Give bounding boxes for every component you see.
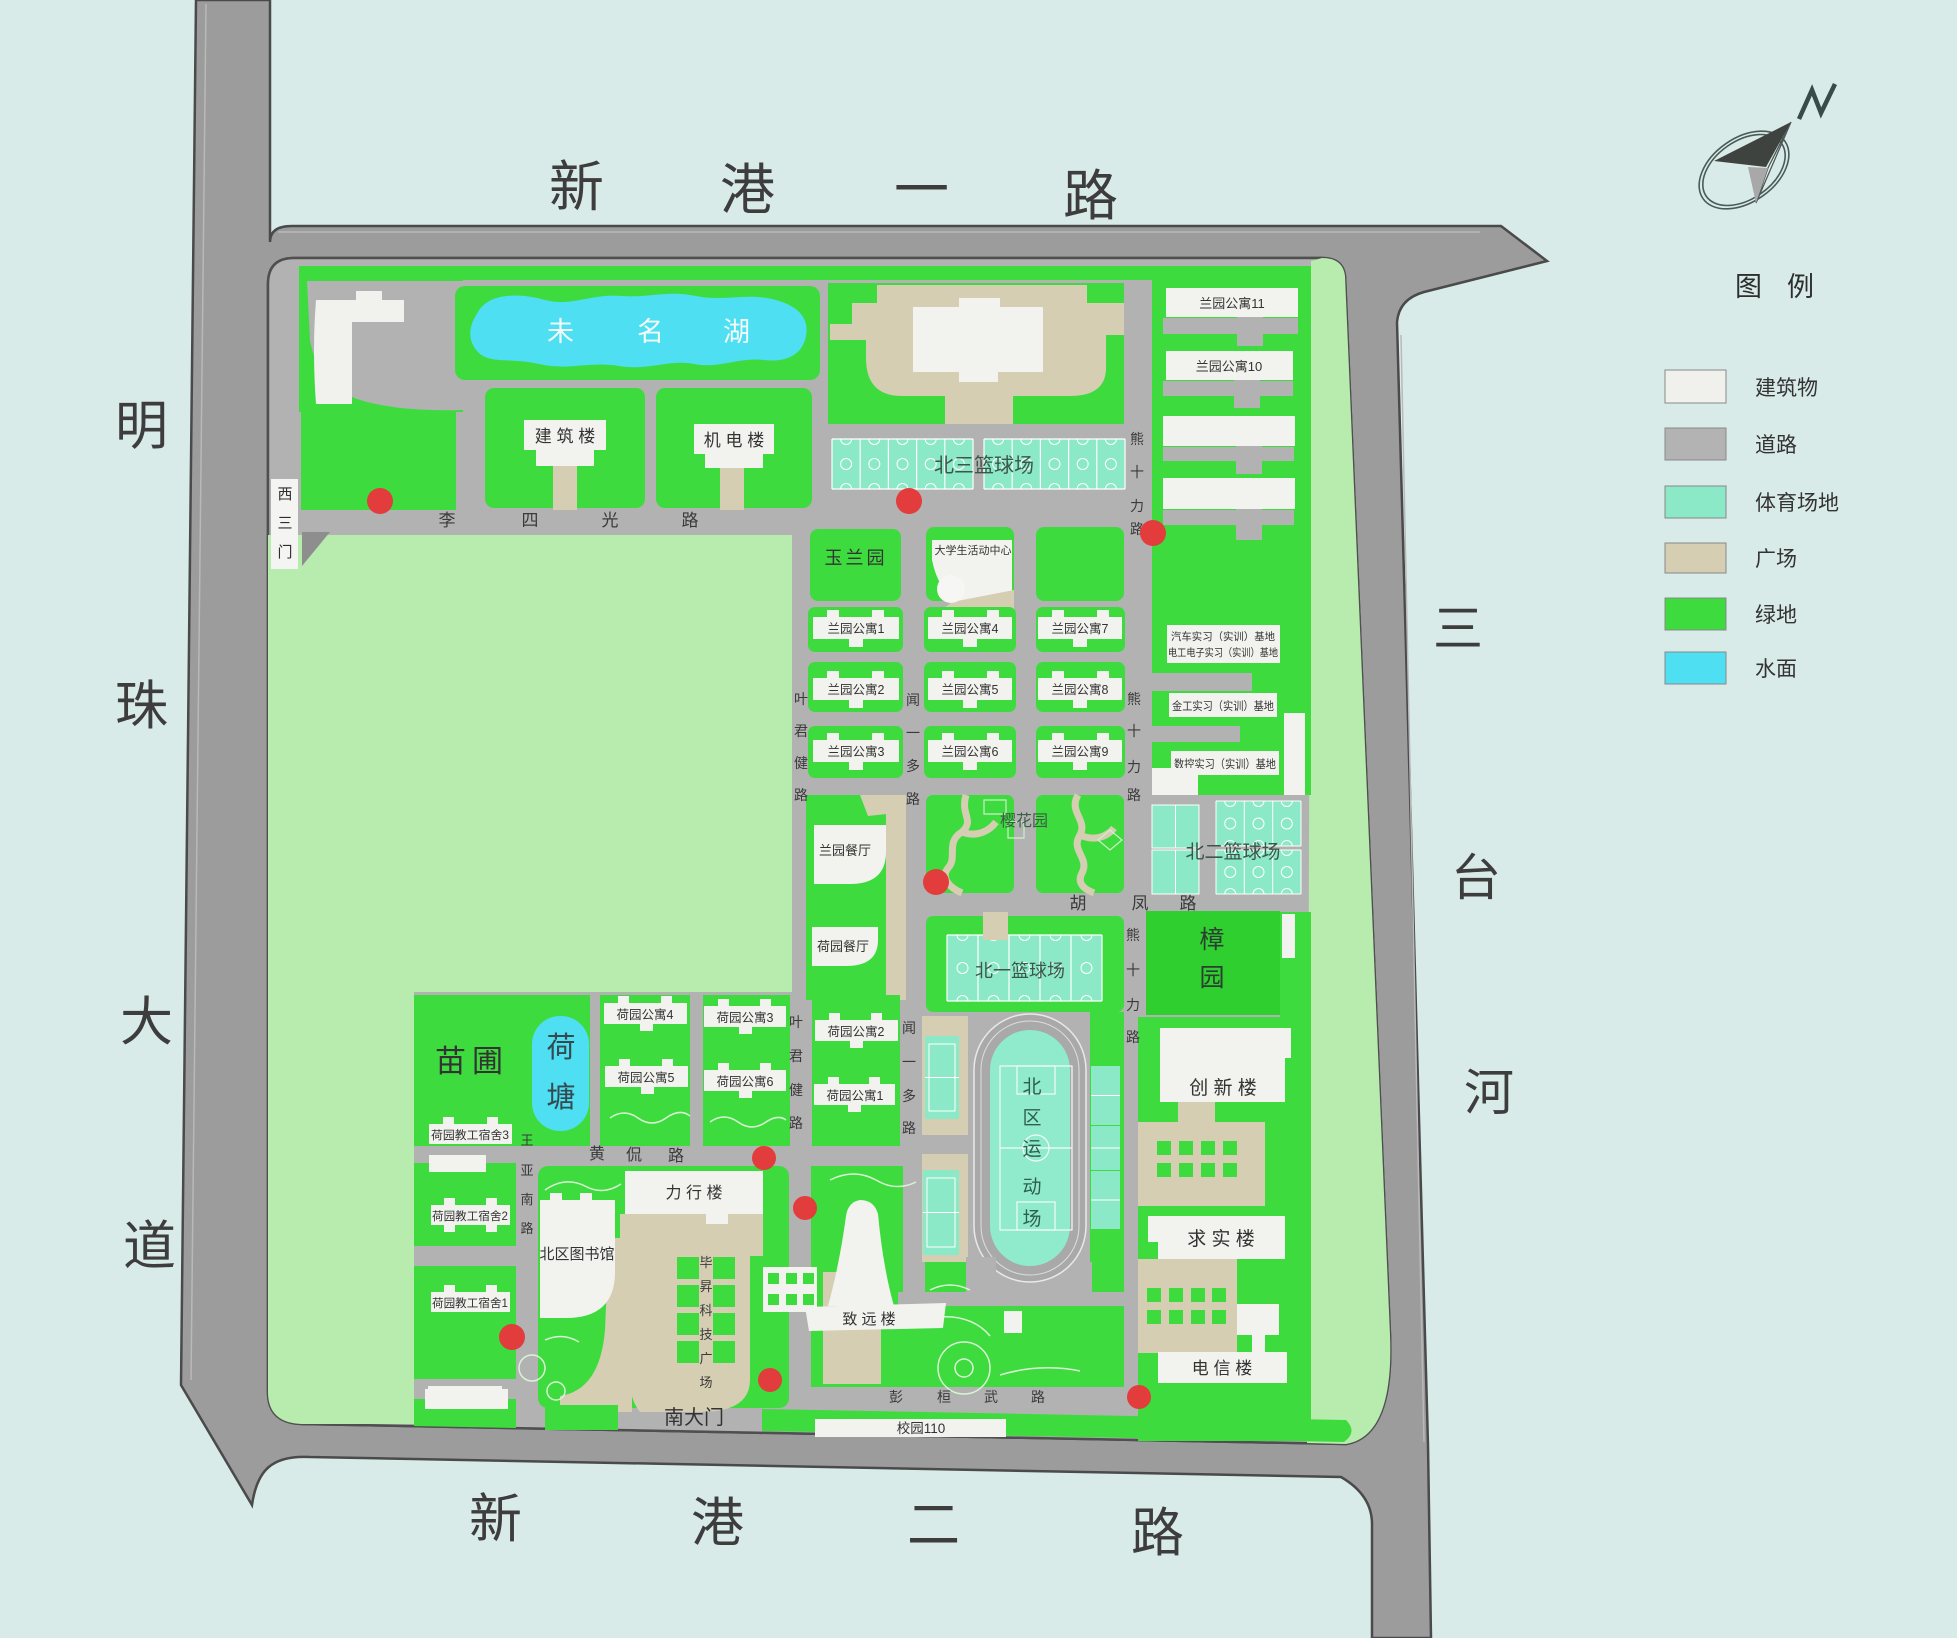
svg-text:体育场地: 体育场地 [1755,492,1839,515]
svg-text:叶: 叶 [789,1014,803,1030]
svg-text:湖: 湖 [723,317,750,347]
svg-text:路: 路 [1127,787,1141,803]
svg-text:兰园公寓5: 兰园公寓5 [942,682,999,697]
svg-text:台: 台 [1451,850,1501,906]
svg-text:北一篮球场: 北一篮球场 [975,961,1065,981]
svg-text:路: 路 [1131,1504,1184,1563]
svg-text:广场: 广场 [1755,548,1797,571]
svg-text:汽车实习（实训）基地: 汽车实习（实训）基地 [1171,630,1275,643]
svg-text:图: 图 [1735,272,1762,302]
svg-text:熊: 熊 [1126,927,1140,943]
svg-text:力: 力 [1126,997,1140,1013]
svg-text:动: 动 [1022,1176,1041,1198]
svg-text:场: 场 [1022,1208,1041,1230]
svg-text:路: 路 [906,791,920,807]
svg-text:荷园餐厅: 荷园餐厅 [817,939,869,954]
svg-text:建 筑 楼: 建 筑 楼 [535,427,595,446]
svg-text:港: 港 [720,159,775,221]
svg-text:樟: 樟 [1199,926,1224,954]
svg-text:闻: 闻 [906,692,920,708]
svg-text:道路: 道路 [1755,434,1797,457]
svg-text:三: 三 [277,515,292,532]
svg-text:兰园公寓9: 兰园公寓9 [1052,744,1109,759]
svg-text:珠: 珠 [115,677,168,736]
svg-text:路: 路 [794,787,808,803]
svg-text:武: 武 [984,1389,998,1405]
svg-text:力: 力 [1127,759,1141,775]
svg-text:叶: 叶 [794,691,808,707]
svg-text:校园110: 校园110 [897,1420,946,1436]
svg-text:荷园教工宿舍1: 荷园教工宿舍1 [432,1296,508,1310]
svg-text:新: 新 [469,1490,522,1549]
svg-text:名: 名 [637,317,664,347]
svg-text:兰园公寓11: 兰园公寓11 [1199,296,1265,311]
svg-text:昇: 昇 [699,1279,712,1294]
svg-text:电 信 楼: 电 信 楼 [1192,1359,1252,1378]
svg-text:兰园公寓8: 兰园公寓8 [1052,682,1109,697]
svg-text:三: 三 [1433,601,1483,657]
svg-text:河: 河 [1464,1065,1514,1121]
svg-text:区: 区 [1022,1108,1041,1129]
svg-text:路: 路 [902,1120,916,1136]
svg-text:场: 场 [699,1375,712,1390]
svg-text:路: 路 [789,1115,803,1131]
svg-text:一: 一 [906,725,920,741]
svg-text:创 新 楼: 创 新 楼 [1189,1077,1257,1099]
svg-text:运: 运 [1022,1139,1041,1160]
svg-text:机 电 楼: 机 电 楼 [704,431,764,450]
svg-text:十: 十 [1127,723,1141,739]
svg-text:兰园公寓6: 兰园公寓6 [942,744,999,759]
svg-text:致 远 楼: 致 远 楼 [842,1311,895,1328]
svg-text:兰园公寓7: 兰园公寓7 [1052,621,1109,636]
svg-text:四: 四 [522,511,539,530]
svg-text:毕: 毕 [699,1255,712,1270]
svg-text:樱花园: 樱花园 [1000,812,1048,830]
svg-text:路: 路 [1063,165,1118,227]
svg-text:路: 路 [682,511,699,530]
svg-text:力: 力 [1130,498,1144,514]
svg-text:荷园公寓1: 荷园公寓1 [827,1088,884,1103]
svg-text:大: 大 [120,993,173,1052]
svg-text:北区图书馆: 北区图书馆 [539,1246,614,1263]
svg-text:彭: 彭 [889,1389,903,1405]
svg-text:门: 门 [277,544,292,561]
svg-text:侃: 侃 [626,1146,642,1164]
svg-text:兰园公寓4: 兰园公寓4 [942,621,999,636]
svg-text:绿地: 绿地 [1755,604,1797,627]
svg-text:熊: 熊 [1130,431,1144,447]
svg-text:金工实习（实训）基地: 金工实习（实训）基地 [1172,699,1274,713]
svg-text:凤: 凤 [1132,894,1149,913]
svg-text:荷园教工宿舍2: 荷园教工宿舍2 [432,1209,508,1223]
svg-text:电工电子实习（实训）基地: 电工电子实习（实训）基地 [1168,646,1278,659]
svg-text:科: 科 [699,1303,712,1318]
svg-text:兰园公寓1: 兰园公寓1 [828,621,885,636]
svg-text:十: 十 [1126,962,1140,978]
svg-text:水面: 水面 [1755,658,1797,681]
svg-text:一: 一 [902,1054,916,1070]
svg-text:李: 李 [439,511,456,530]
svg-text:健: 健 [794,755,808,771]
svg-text:苗圃: 苗圃 [435,1044,509,1079]
svg-text:路: 路 [1126,1029,1140,1045]
svg-text:力 行 楼: 力 行 楼 [666,1184,723,1202]
svg-text:一: 一 [894,159,949,221]
svg-text:君: 君 [794,723,808,739]
svg-text:路: 路 [1180,894,1197,913]
svg-text:例: 例 [1787,272,1814,302]
svg-text:新: 新 [549,156,604,218]
svg-text:道: 道 [123,1217,176,1276]
svg-text:荷园公寓2: 荷园公寓2 [828,1024,885,1039]
svg-text:君: 君 [789,1048,803,1064]
svg-text:桓: 桓 [937,1389,951,1405]
svg-text:十: 十 [1130,464,1144,480]
svg-text:明: 明 [115,397,168,456]
svg-text:南大门: 南大门 [664,1406,724,1429]
svg-text:西: 西 [277,486,292,503]
svg-text:荷: 荷 [546,1031,575,1064]
svg-text:二: 二 [907,1496,960,1555]
svg-text:建筑物: 建筑物 [1755,377,1818,400]
svg-text:北三篮球场: 北三篮球场 [934,454,1034,477]
svg-text:闻: 闻 [902,1020,916,1036]
svg-text:荷园教工宿舍3: 荷园教工宿舍3 [431,1128,509,1142]
svg-text:荷园公寓3: 荷园公寓3 [717,1010,774,1025]
svg-text:技: 技 [699,1327,712,1342]
svg-text:兰园餐厅: 兰园餐厅 [819,843,871,858]
svg-text:路: 路 [668,1147,684,1165]
svg-text:荷园公寓6: 荷园公寓6 [717,1074,774,1089]
svg-text:王: 王 [520,1133,533,1148]
svg-text:荷园公寓5: 荷园公寓5 [618,1070,675,1085]
svg-text:大学生活动中心: 大学生活动中心 [935,543,1012,557]
svg-text:北: 北 [1022,1076,1041,1098]
svg-text:园: 园 [1199,964,1224,992]
svg-text:港: 港 [691,1494,744,1553]
svg-text:黄: 黄 [589,1145,605,1163]
svg-text:熊: 熊 [1127,691,1141,707]
svg-text:玉兰园: 玉兰园 [825,548,888,568]
svg-text:路: 路 [520,1221,533,1236]
svg-text:健: 健 [789,1082,803,1098]
svg-text:广: 广 [699,1351,712,1366]
svg-text:兰园公寓3: 兰园公寓3 [828,744,885,759]
svg-text:未: 未 [547,317,574,347]
svg-text:北二篮球场: 北二篮球场 [1185,841,1280,863]
svg-text:多: 多 [902,1088,916,1104]
svg-text:光: 光 [602,511,619,530]
svg-text:南: 南 [520,1192,533,1207]
svg-text:塘: 塘 [546,1081,575,1114]
svg-text:胡: 胡 [1070,894,1087,913]
svg-text:多: 多 [906,758,920,774]
svg-text:求 实 楼: 求 实 楼 [1187,1228,1255,1250]
svg-text:兰园公寓10: 兰园公寓10 [1196,359,1262,374]
svg-text:路: 路 [1031,1389,1045,1405]
svg-text:兰园公寓2: 兰园公寓2 [828,682,885,697]
svg-text:荷园公寓4: 荷园公寓4 [617,1007,674,1022]
svg-text:亚: 亚 [520,1163,533,1178]
